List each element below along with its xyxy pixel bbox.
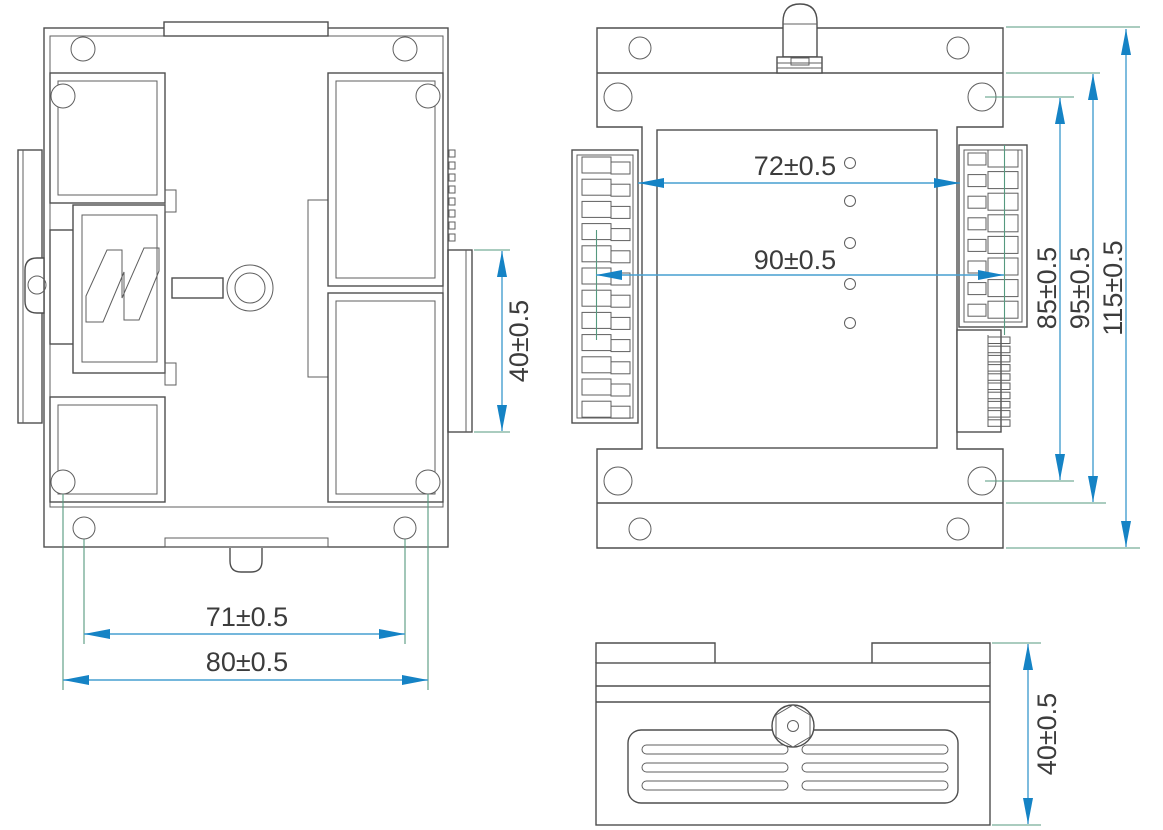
front-view: [572, 4, 1027, 548]
terminal-block-left: [572, 150, 638, 423]
top-notch-tab: [164, 22, 328, 36]
dim-label-rail-flange-depth: 40±0.5: [504, 300, 534, 382]
dimensional-drawing: 71±0.5 80±0.5 40±0.5 72±0.5 90±0.5 85±0.…: [0, 0, 1163, 830]
dim-label-overall-width: 80±0.5: [206, 647, 288, 677]
dim-label-body-width: 90±0.5: [754, 245, 836, 275]
latch-hole-outer: [227, 265, 273, 311]
mount-hole: [629, 518, 651, 540]
dim-label-terminal-span: 72±0.5: [754, 151, 836, 181]
dim-label-flange-pitch: 95±0.5: [1065, 247, 1095, 329]
antenna-connector: [777, 4, 822, 73]
dim-label-overall-height: 115±0.5: [1098, 240, 1128, 335]
mount-hole: [604, 83, 632, 111]
latch-shaft: [172, 278, 223, 298]
back-view: [18, 22, 472, 572]
terminal-block-right: [959, 145, 1027, 327]
dim-label-mount-hole-pitch: 85±0.5: [1032, 247, 1062, 329]
technical-drawing-canvas: 71±0.5 80±0.5 40±0.5 72±0.5 90±0.5 85±0.…: [0, 0, 1163, 830]
mount-hole: [604, 467, 632, 495]
mount-hole: [629, 37, 651, 59]
mount-hole: [947, 37, 969, 59]
edge-teeth: [449, 150, 455, 241]
mount-hole: [947, 518, 969, 540]
top-view: [596, 643, 990, 825]
top-tab-right: [872, 643, 990, 663]
dim-label-overall-depth: 40±0.5: [1032, 693, 1062, 775]
top-tab-left: [596, 643, 715, 663]
side-flange-plate: [448, 250, 472, 432]
dim-label-hole-pitch: 71±0.5: [206, 602, 288, 632]
front-body-outline: [597, 28, 1003, 548]
antenna-hex-nut: [772, 705, 814, 747]
din-release-tongue: [230, 548, 262, 572]
serial-connector: [957, 330, 1010, 432]
